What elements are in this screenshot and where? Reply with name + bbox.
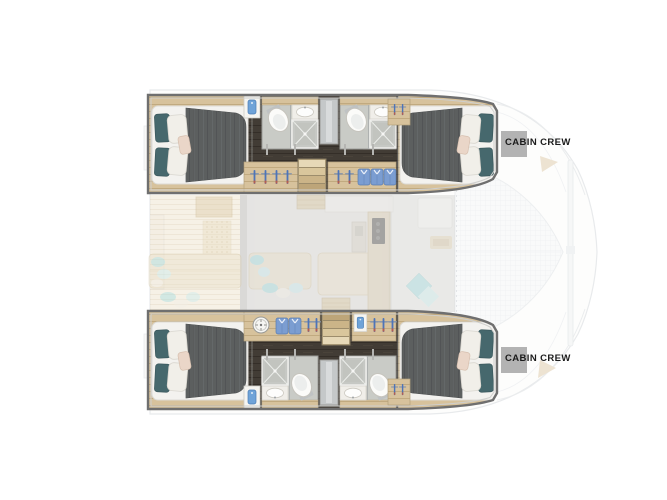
saloon-lounger-right (318, 253, 372, 295)
bed-port-fore (400, 106, 496, 184)
crew-cabin-text-port: CABIN CREW (505, 138, 571, 148)
hull-port (148, 95, 498, 193)
bed-starboard-fore (400, 322, 496, 400)
bathroom-starboard-aft (262, 356, 318, 408)
stairs-port (298, 159, 326, 193)
bathroom-port-fore (340, 97, 396, 149)
crew-cabin-text-starboard: CABIN CREW (505, 354, 571, 364)
wardrobe-port-fore-wall (388, 99, 410, 125)
hull-starboard (148, 311, 498, 409)
cockpit-table (418, 198, 452, 228)
saloon-entry-steps-starboard (322, 298, 350, 311)
bathroom-port-aft (262, 97, 318, 149)
bathroom-starboard-fore (340, 356, 396, 408)
saloon-divider-wall (240, 195, 247, 312)
bed-port-aft (152, 106, 248, 184)
saloon-rug (203, 221, 231, 255)
crew-cabin-label-port: CABIN CREW (501, 131, 561, 157)
nav-desk (196, 197, 232, 217)
vanity-port (244, 96, 260, 118)
wardrobe-port-left (244, 162, 298, 193)
floorplan-canvas (0, 0, 667, 500)
galley-counter (325, 196, 393, 212)
bed-starboard-aft (152, 322, 248, 400)
stairs-starboard (322, 311, 350, 345)
wardrobe-starboard-fore-wall (388, 379, 410, 405)
vanity-starboard (244, 386, 260, 408)
clock-dial (253, 317, 269, 333)
floorplan-stage: CABIN CREW CABIN CREW (0, 0, 667, 500)
bowsprit-cleat (566, 246, 575, 254)
saloon-entry-steps-port (297, 195, 325, 209)
crew-cabin-label-starboard: CABIN CREW (501, 347, 561, 373)
